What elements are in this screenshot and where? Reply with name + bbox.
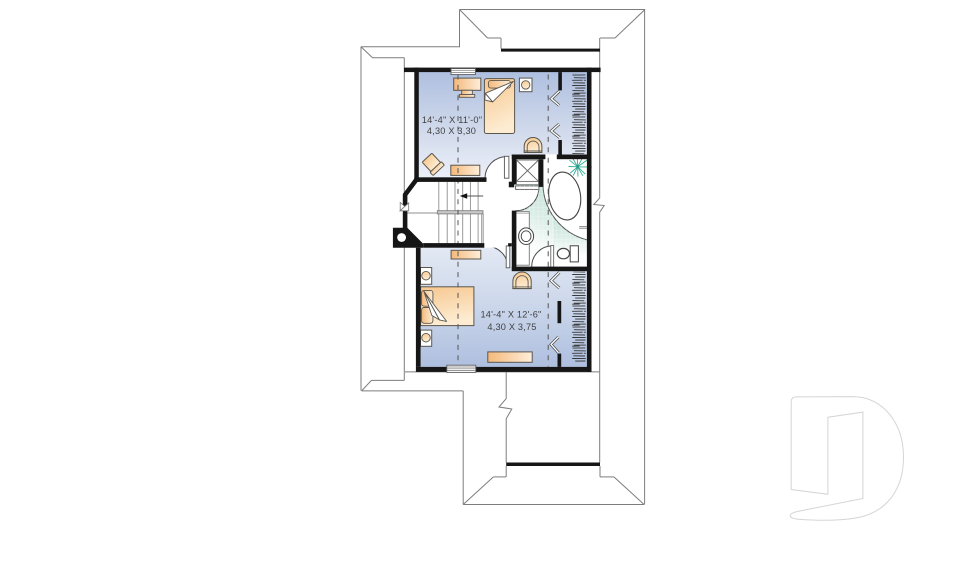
svg-text:4,30 X 3,30: 4,30 X 3,30 bbox=[427, 126, 476, 136]
svg-text:4,30 X 3,75: 4,30 X 3,75 bbox=[487, 322, 536, 332]
svg-text:14'-4" X 11'-0": 14'-4" X 11'-0" bbox=[422, 115, 482, 125]
svg-text:14'-4" X 12'-6": 14'-4" X 12'-6" bbox=[480, 309, 541, 319]
